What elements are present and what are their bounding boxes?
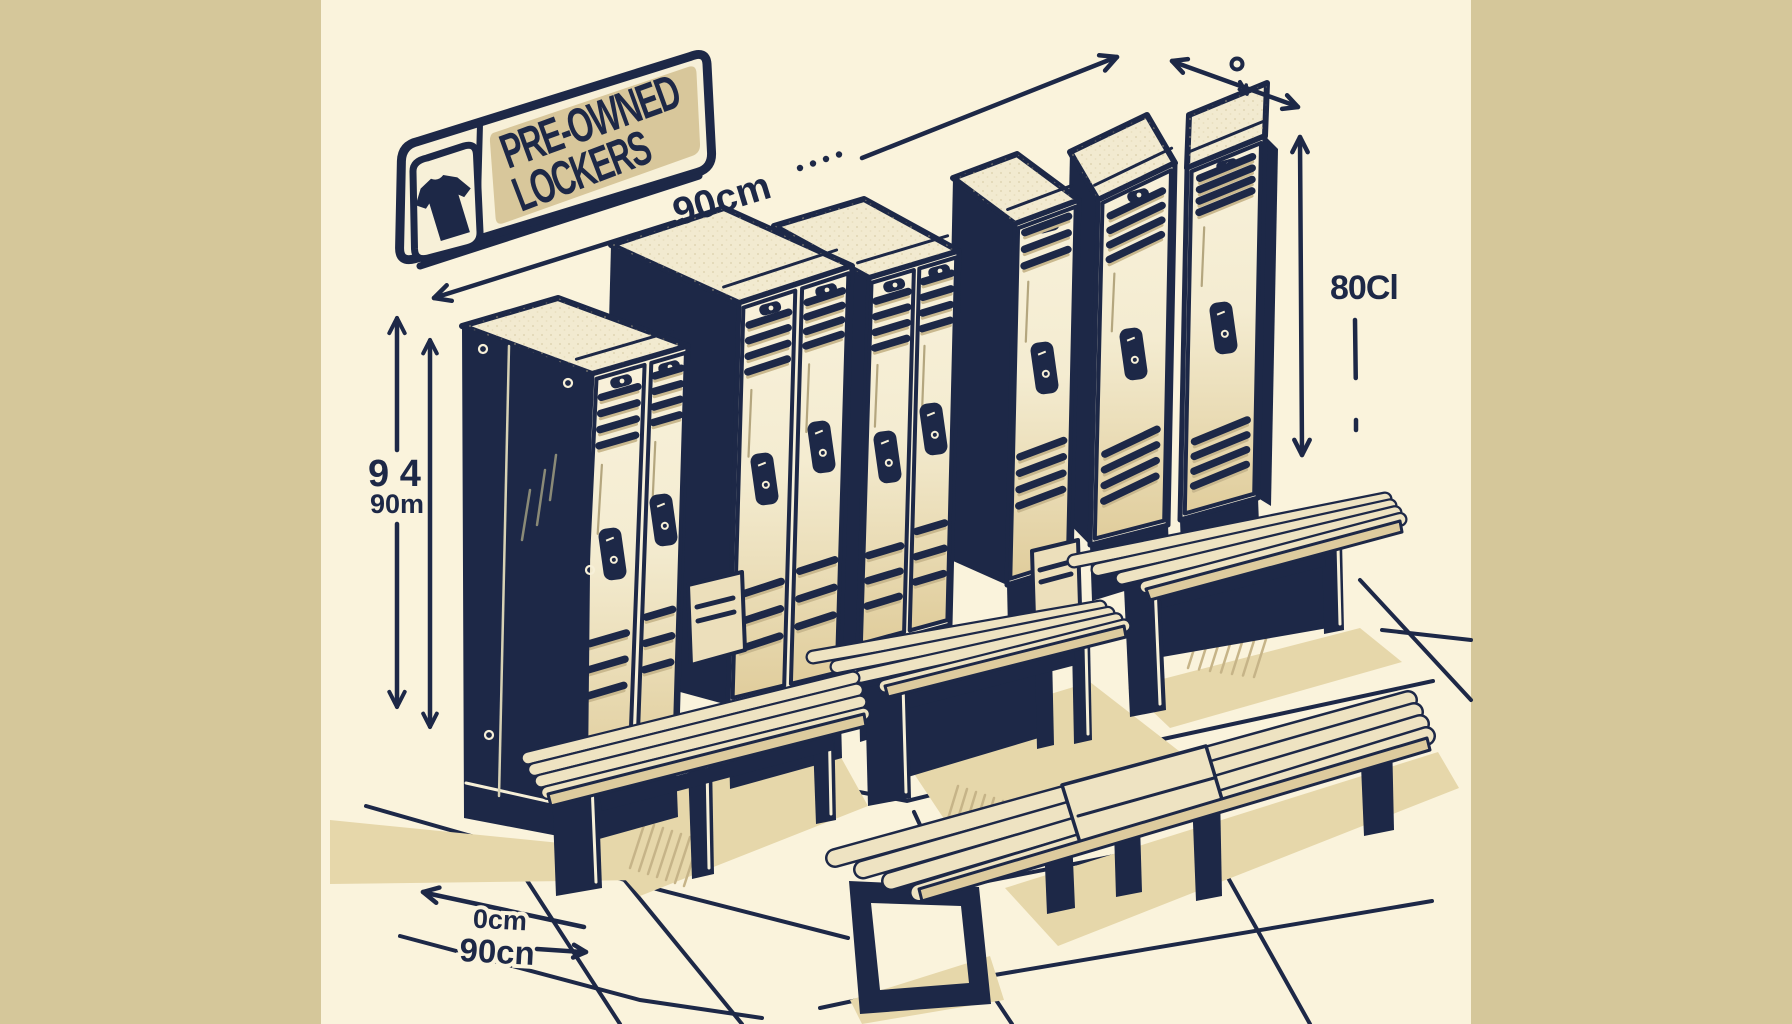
svg-text:90m: 90m xyxy=(370,489,424,519)
svg-text:80Cl: 80Cl xyxy=(1330,269,1398,307)
svg-text:90cn: 90cn xyxy=(459,931,536,972)
